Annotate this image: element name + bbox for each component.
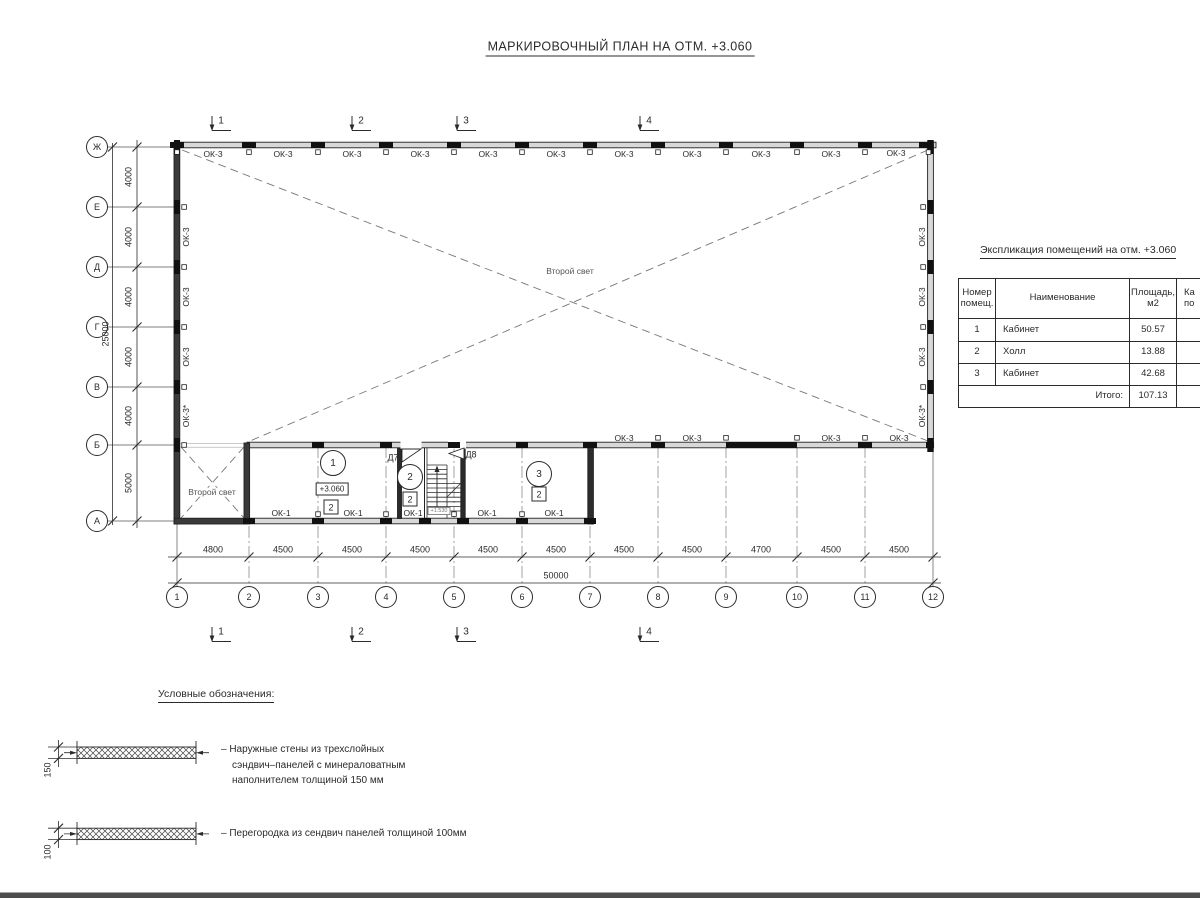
axis-bubble-col: 12 (922, 586, 944, 608)
window-label: ОК-3 (342, 150, 361, 159)
window-label: ОК-3 (182, 227, 191, 246)
table-header-cell: Площадь,м2 (1129, 279, 1176, 319)
dimension-value: 4000 (125, 406, 134, 426)
legend-item-text: – Перегородка из сендвич панелей толщино… (221, 828, 466, 839)
window-label: ОК-1 (403, 509, 422, 518)
window-label: ОК-3 (918, 347, 927, 366)
walls (174, 142, 936, 524)
plan-linework (0, 0, 1200, 900)
table-total-category (1176, 385, 1200, 407)
legend-wall-symbols (48, 740, 209, 848)
column-symbols (175, 150, 931, 517)
legend-item-text: наполнителем толщиной 150 мм (232, 775, 384, 786)
window-label: ОК-3* (918, 405, 927, 427)
axis-bubble-row: Ж (86, 136, 108, 158)
category-mark: 2 (532, 487, 547, 502)
axis-bubble-row: А (86, 510, 108, 532)
dimension-value: 4500 (342, 546, 362, 555)
table-cell-room-category (1176, 341, 1200, 363)
dimension-value: 4500 (889, 546, 909, 555)
legend-thickness-label: 150 (44, 762, 53, 777)
stair-elevation-mark: +1.530 (428, 507, 451, 515)
dimension-value: 4500 (682, 546, 702, 555)
category-mark: 2 (324, 500, 339, 515)
table-cell-room-area: 13.88 (1129, 341, 1176, 363)
table-cell-room-number: 3 (959, 363, 995, 385)
category-mark: 2 (403, 492, 418, 507)
table-header-cell: Капо (1176, 279, 1200, 319)
window-label: ОК-1 (477, 509, 496, 518)
axis-bubble-row: Б (86, 434, 108, 456)
axis-bubble-col: 11 (854, 586, 876, 608)
window-label: ОК-1 (544, 509, 563, 518)
section-marker-label: 2 (358, 116, 364, 127)
table-cell-room-name: Кабинет (995, 319, 1129, 341)
axis-bubble-row: В (86, 376, 108, 398)
section-marker-symbols (210, 116, 659, 642)
window-label: ОК-3 (410, 150, 429, 159)
door-label: Д8 (465, 451, 476, 460)
room-explication-table: Номерпомещ. Наименование Площадь,м2 Капо… (958, 278, 1200, 408)
second-light-label: Второй свет (186, 488, 238, 497)
dimension-lines (113, 140, 942, 583)
legend-thickness-label: 100 (44, 844, 53, 859)
axis-bubble-col: 6 (511, 586, 533, 608)
legend-item-text: сэндвич–панелей с минераловатным (232, 760, 405, 771)
window-label: ОК-1 (343, 509, 362, 518)
table-header-cell: Номерпомещ. (959, 279, 995, 319)
table-cell-room-category (1176, 319, 1200, 341)
table-total-area: 107.13 (1129, 385, 1176, 407)
room-number: 2 (397, 464, 423, 490)
legend-item-text: – Наружные стены из трехслойных (221, 744, 384, 755)
axis-bubble-col: 3 (307, 586, 329, 608)
axis-bubble-row: Д (86, 256, 108, 278)
door-label: Д7 (387, 454, 398, 463)
window-label: ОК-3 (821, 150, 840, 159)
axis-bubble-col: 9 (715, 586, 737, 608)
window-label: ОК-3 (546, 150, 565, 159)
window-label: ОК-3 (182, 287, 191, 306)
dimension-total: 25000 (102, 321, 111, 346)
dimension-total: 50000 (543, 572, 568, 581)
window-label: ОК-3 (182, 347, 191, 366)
dimension-value: 4000 (125, 167, 134, 187)
table-cell-room-category (1176, 363, 1200, 385)
window-label: ОК-3 (889, 434, 908, 443)
dimension-value: 4500 (546, 546, 566, 555)
void-diagonals (181, 150, 928, 518)
axis-bubble-col: 10 (786, 586, 808, 608)
window-label: ОК-3 (918, 287, 927, 306)
page-title: МАРКИРОВОЧНЫЙ ПЛАН НА ОТМ. +3.060 (486, 40, 755, 57)
table-total-label: Итого: (959, 385, 1129, 407)
table-cell-room-area: 42.68 (1129, 363, 1176, 385)
axis-bubble-col: 8 (647, 586, 669, 608)
dimension-value: 4500 (410, 546, 430, 555)
section-marker-label: 3 (463, 627, 469, 638)
drawing-sheet: МАРКИРОВОЧНЫЙ ПЛАН НА ОТМ. +3.060 Экспли… (0, 0, 1200, 900)
section-marker-label: 1 (218, 116, 224, 127)
window-label: ОК-1 (271, 509, 290, 518)
window-label: ОК-3* (182, 405, 191, 427)
table-cell-room-name: Кабинет (995, 363, 1129, 385)
table-cell-room-area: 50.57 (1129, 319, 1176, 341)
elevation-mark: +3.060 (316, 483, 349, 496)
window-label: ОК-3 (478, 150, 497, 159)
window-label: ОК-3 (203, 150, 222, 159)
window-label: ОК-3 (751, 150, 770, 159)
axis-bubble-col: 7 (579, 586, 601, 608)
section-marker-label: 4 (646, 116, 652, 127)
window-label: ОК-3 (682, 434, 701, 443)
dimension-value: 4500 (273, 546, 293, 555)
dimension-value: 4500 (614, 546, 634, 555)
dimension-value: 4800 (203, 546, 223, 555)
table-cell-room-name: Холл (995, 341, 1129, 363)
window-label: ОК-3 (273, 150, 292, 159)
axis-bubble-col: 5 (443, 586, 465, 608)
window-label: ОК-3 (918, 227, 927, 246)
dimension-value: 4000 (125, 347, 134, 367)
window-label: ОК-3 (682, 150, 701, 159)
section-marker-label: 4 (646, 627, 652, 638)
table-cell-room-number: 1 (959, 319, 995, 341)
dimension-value: 5000 (125, 473, 134, 493)
section-marker-label: 3 (463, 116, 469, 127)
dimension-value: 4000 (125, 227, 134, 247)
legend-title: Условные обозначения: (158, 688, 274, 703)
axis-bubble-col: 4 (375, 586, 397, 608)
section-marker-label: 1 (218, 627, 224, 638)
window-label: ОК-3 (821, 434, 840, 443)
table-header-cell: Наименование (995, 279, 1129, 319)
window-label: ОК-3 (886, 149, 905, 158)
dimension-value: 4500 (478, 546, 498, 555)
table-cell-room-number: 2 (959, 341, 995, 363)
axis-bubble-col: 1 (166, 586, 188, 608)
window-label: ОК-3 (614, 434, 633, 443)
room-number: 1 (320, 450, 346, 476)
axis-bubble-col: 2 (238, 586, 260, 608)
dimension-value: 4000 (125, 287, 134, 307)
dimension-value: 4500 (821, 546, 841, 555)
axis-bubble-row: Е (86, 196, 108, 218)
dimension-value: 4700 (751, 546, 771, 555)
section-marker-label: 2 (358, 627, 364, 638)
sheet-frame-edge (0, 893, 1200, 899)
wall-marks (170, 140, 934, 524)
window-label: ОК-3 (614, 150, 633, 159)
table-title: Экспликация помещений на отм. +3.060 (980, 244, 1176, 259)
room-number: 3 (526, 461, 552, 487)
second-light-label: Второй свет (544, 267, 596, 276)
